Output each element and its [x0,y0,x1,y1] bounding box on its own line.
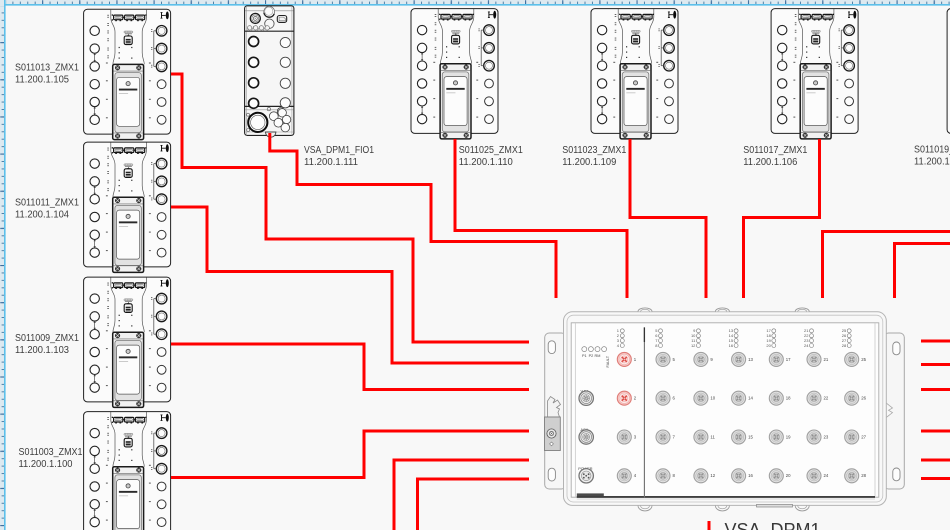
svg-text:17: 17 [786,357,791,362]
svg-text:S011003_ZMX1: S011003_ZMX1 [19,447,83,458]
svg-text:24: 24 [824,473,829,478]
svg-text:VSA_DPM1: VSA_DPM1 [725,520,821,530]
svg-text:RM: RM [595,354,601,358]
svg-text:P1: P1 [582,354,587,358]
svg-text:S011009_ZMX1: S011009_ZMX1 [15,333,79,344]
svg-text:20: 20 [766,343,771,348]
svg-text:FAULT: FAULT [606,355,610,367]
svg-text:11.200.1.104: 11.200.1.104 [15,210,70,221]
svg-text:S011017_ZMX1: S011017_ZMX1 [743,145,807,156]
svg-text:15: 15 [748,434,753,439]
svg-text:11.200.1.100: 11.200.1.100 [19,459,74,470]
svg-text:27: 27 [861,434,866,439]
svg-text:16: 16 [748,473,753,478]
svg-text:VSA_DPM1_FIO1: VSA_DPM1_FIO1 [304,145,374,156]
svg-text:S011025_ZMX1: S011025_ZMX1 [459,145,523,156]
svg-text:26: 26 [861,396,866,401]
svg-text:12: 12 [710,473,715,478]
svg-text:14: 14 [748,396,753,401]
svg-text:28: 28 [861,473,866,478]
svg-text:S011013_ZMX1: S011013_ZMX1 [15,63,79,74]
svg-text:20: 20 [786,473,791,478]
svg-text:S011019_ZMX1: S011019_ZMX1 [914,145,950,156]
svg-text:11.200.1.106: 11.200.1.106 [743,157,798,168]
svg-text:P2: P2 [589,354,594,358]
svg-text:11.200.1.105: 11.200.1.105 [15,75,70,86]
svg-text:25: 25 [861,357,866,362]
svg-text:18: 18 [786,396,791,401]
svg-text:11.200.1.111: 11.200.1.111 [304,157,358,168]
svg-text:S011023_ZMX1: S011023_ZMX1 [562,145,626,156]
svg-text:16: 16 [729,343,734,348]
svg-text:10: 10 [710,396,715,401]
svg-text:22: 22 [824,396,829,401]
svg-text:11.200.1.110: 11.200.1.110 [459,157,514,168]
svg-text:28: 28 [842,343,847,348]
svg-text:12: 12 [691,343,696,348]
svg-text:23: 23 [824,434,829,439]
svg-text:13: 13 [748,357,753,362]
svg-text:21: 21 [824,357,829,362]
svg-text:24: 24 [804,343,809,348]
svg-text:11.200.1.109: 11.200.1.109 [562,157,616,168]
svg-text:11.200.1.108: 11.200.1.108 [914,157,950,168]
svg-text:S011011_ZMX1: S011011_ZMX1 [15,198,79,209]
svg-text:19: 19 [786,434,791,439]
svg-text:11.200.1.103: 11.200.1.103 [15,345,70,356]
svg-text:11: 11 [710,434,715,439]
